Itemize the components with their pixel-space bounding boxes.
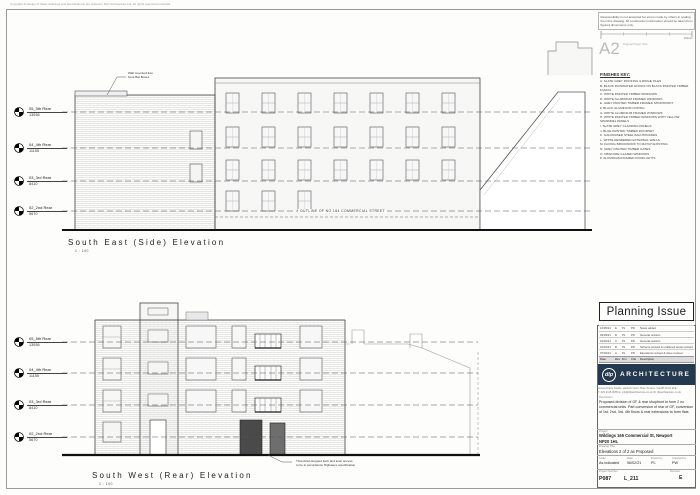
datum-icon (14, 400, 24, 410)
side-right-gable (480, 92, 585, 230)
status-label: Planning Issue (607, 306, 687, 318)
level-marker-e2-03: 03_3rd Rear8410 (14, 399, 67, 411)
paper-size-block: A2 Original Paper Size (599, 40, 651, 57)
drawn-label: Drawn by (651, 457, 662, 460)
datum-icon (14, 206, 24, 216)
paper-size: A2 (599, 40, 620, 57)
project-number: P087 (599, 476, 611, 482)
finishes-key-item: L. WHITE RENDERED EXTERNAL WALLS (600, 138, 695, 142)
drawn-value: PL (651, 461, 656, 465)
finishes-key-item: O. OBSCURE GLAZED WINDOWS (600, 152, 695, 156)
architect-contact: T. 029 2115 0085 E. info@dlparchitecture… (598, 391, 695, 394)
divider (597, 455, 696, 456)
elevation-side-scale: 1 : 100 (75, 249, 89, 253)
elevation-rear-title: South West (Rear) Elevation (92, 471, 253, 480)
bat-box-note: Wall mounted Eco Kent Bat Boxes (128, 71, 153, 79)
rear-adjacent-outline (345, 330, 478, 455)
drawing-number: L_211 (624, 476, 638, 482)
datum-icon (14, 432, 24, 442)
revision-row: 10/02/21BPLPDScheme revised & unaltered … (599, 343, 694, 349)
elevation-rear-drawing (0, 290, 595, 485)
planning-issue-box: Planning Issue (599, 302, 694, 321)
drawing-sheet: Copyright & Design of these drawings and… (0, 0, 700, 495)
level-marker-e2-05: 05_5th Rear13936 (14, 336, 67, 348)
elevation-side-title: South East (Side) Elevation (68, 238, 225, 247)
datum-icon (14, 337, 24, 347)
scaling-disclaimer: Responsibility is not accepted for error… (598, 12, 695, 30)
level-marker-e1-04: 04_4th Rear11155 (14, 142, 67, 154)
project-description: Proposed division of GF & rear shopfront… (599, 400, 694, 415)
finishes-key-title: FINISHES KEY: (600, 72, 695, 77)
elevation-rear-scale: 1 : 100 (99, 482, 113, 486)
finishes-key-item: M. FACING BRICKWORK TO MATCH EXISTING (600, 142, 695, 146)
divider (597, 429, 696, 430)
rooftop-chimney-outline (548, 42, 592, 75)
finishes-key-item: N. GREY PAINTED TIMBER GATES (600, 147, 695, 151)
rear-facade (95, 303, 345, 455)
datum-icon (14, 368, 24, 378)
checked-value: PW (672, 461, 678, 465)
scale-bar-graphic (600, 31, 693, 37)
datum-icon (14, 143, 24, 153)
date-label: Date (627, 457, 633, 460)
finishes-key-item: F. BLACK ALUMINIUM COPING (600, 106, 695, 110)
revision-table: 12/05/21EPLPDNotes added 03/03/21DPLPDGe… (599, 325, 694, 363)
finishes-key-item: K. GALVANISED STEEL BALUSTRADES (600, 133, 695, 137)
rear-balconies (255, 334, 281, 412)
finishes-key-item: C. WHITE PAINTED TIMBER WINDOWS (600, 92, 695, 96)
finishes-key-item: G. WHITE ALUMINIUM FRAMED WINDOWS (600, 111, 695, 115)
level-marker-e1-03: 03_3rd Rear8410 (14, 175, 67, 187)
scale-bar-end: 100mm (684, 36, 693, 40)
finishes-key-item: P. ALUMINIUM FRAMED ROOFLIGHTS (600, 156, 695, 160)
revision-row: 12/05/21EPLPDNotes added (599, 325, 694, 331)
date-value: 06/02/21 (627, 461, 641, 465)
drawing-title: Elevations 2 of 2 as Proposed (599, 449, 694, 454)
elevation-side-drawing (0, 35, 595, 245)
level-marker-e2-02: 02_2nd Rear5670 (14, 431, 67, 443)
finishes-key-item: I. SLATE GREY CLADDING PANELS (600, 124, 695, 128)
finishes-key-item: J. BLUE PAINTED TIMBER DOORSET (600, 129, 695, 133)
finishes-key-item: H. WHITE PAINTED TIMBER WINDOWS WITH YEL… (600, 115, 695, 123)
scale-value: As indicated (599, 461, 623, 465)
project-name: Wildings 165 Commercial St, Newport (599, 433, 694, 438)
finishes-key-item: D. WHITE ALUMINIUM FRAMED WINDOWS (600, 97, 695, 101)
outline-note: OUTLINE OF NO 164 COMMERCIAL STREET (298, 209, 387, 213)
revision-row: 07/02/21APLPDElevations revised & issue … (599, 349, 694, 355)
finishes-key: FINISHES KEY: A. SLATE GREY ROOFING & RI… (600, 72, 695, 161)
finishes-key-item: B. BLACK RAINWATER GOODS ON BLACK PAINTE… (600, 84, 695, 92)
side-middle-block (215, 78, 480, 230)
architect-name: ARCHITECTURE (620, 371, 690, 378)
finishes-key-item: E. GREY PAINTED TIMBER FRAMED SHOPFRONT (600, 101, 695, 105)
drawing-title-label: Drawing Title (599, 445, 615, 448)
revision-header-row: DateRevDrnChkDescription (599, 356, 694, 363)
threshold-note: Threshold dropped kerb and level access … (296, 459, 355, 467)
datum-icon (14, 176, 24, 186)
dlp-logo-icon: dlp (602, 368, 616, 382)
paper-size-caption: Original Paper Size (623, 40, 651, 47)
project-number-label: Project Number (599, 470, 618, 473)
architect-logo-bar: dlp ARCHITECTURE (598, 364, 695, 385)
description-label: Description (599, 396, 612, 399)
architect-address: Ground Floor Studio, Harlech Court, Bute… (598, 387, 695, 390)
scale-label: Scale (599, 457, 606, 460)
finishes-key-item: A. SLATE GREY ROOFING & RIDGE TILES (600, 79, 695, 83)
revision-label: Revision (670, 470, 680, 473)
checked-label: Checked by (672, 457, 686, 460)
revision-value: E (679, 475, 682, 481)
level-marker-e1-05: 05_5th Rear13936 (14, 106, 67, 118)
level-marker-e2-04: 04_4th Rear11155 (14, 367, 67, 379)
datum-icon (14, 107, 24, 117)
revision-row: 19/02/21CPLPDGeneral revision (599, 337, 694, 343)
level-marker-e1-02: 02_2nd Rear5670 (14, 205, 67, 217)
revision-row: 03/03/21DPLPDGeneral revision (599, 331, 694, 337)
copyright-note: Copyright & Design of these drawings and… (10, 2, 410, 6)
